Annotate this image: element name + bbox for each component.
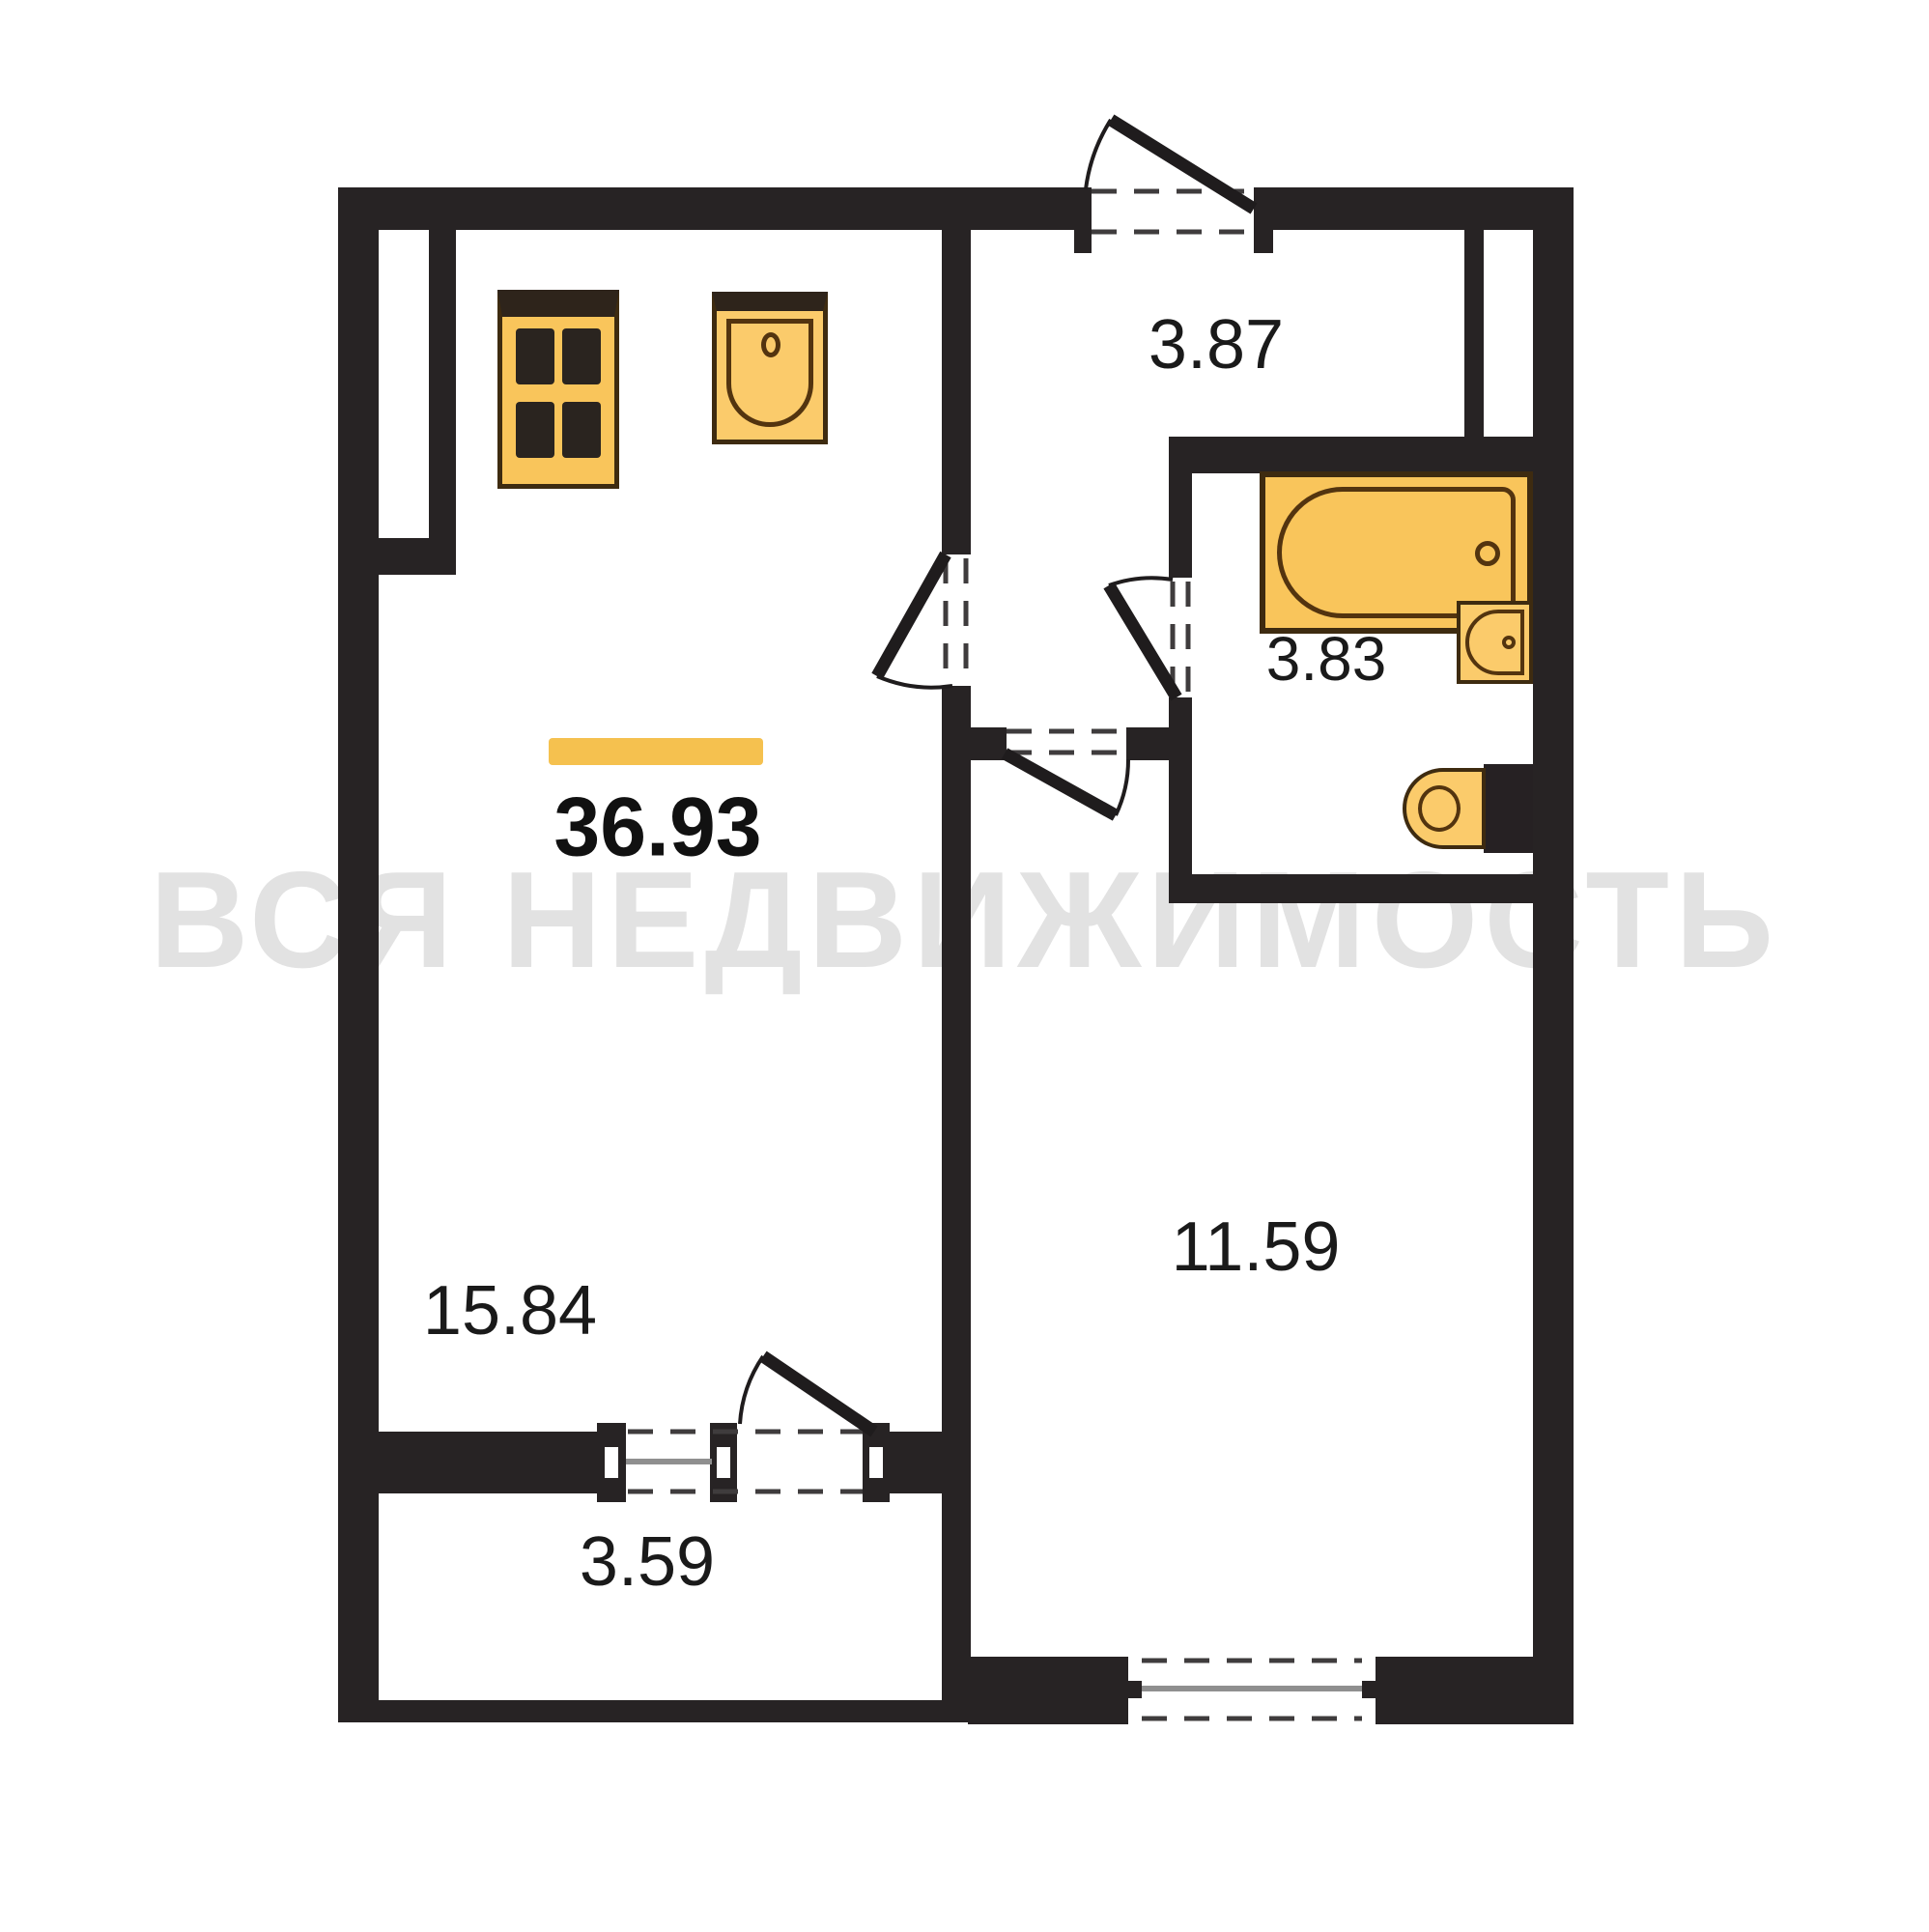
room-area-balcony: 3.59	[580, 1522, 715, 1602]
opening-dashes	[628, 191, 1362, 1719]
door-swing-arcs	[740, 120, 1173, 1424]
room-area-kitchen-living: 15.84	[423, 1271, 597, 1350]
doors-windows-layer	[0, 0, 1929, 1932]
floor-plan: ВСЯ НЕДВИЖИМОСТЬ	[0, 0, 1929, 1932]
room-area-bedroom: 11.59	[1172, 1207, 1341, 1287]
total-area-label: 36.93	[553, 781, 761, 876]
window-glass-lines	[626, 1462, 1362, 1689]
room-area-hall: 3.87	[1149, 305, 1284, 384]
room-area-bathroom: 3.83	[1266, 623, 1387, 695]
total-area-highlight-bar	[549, 738, 763, 765]
